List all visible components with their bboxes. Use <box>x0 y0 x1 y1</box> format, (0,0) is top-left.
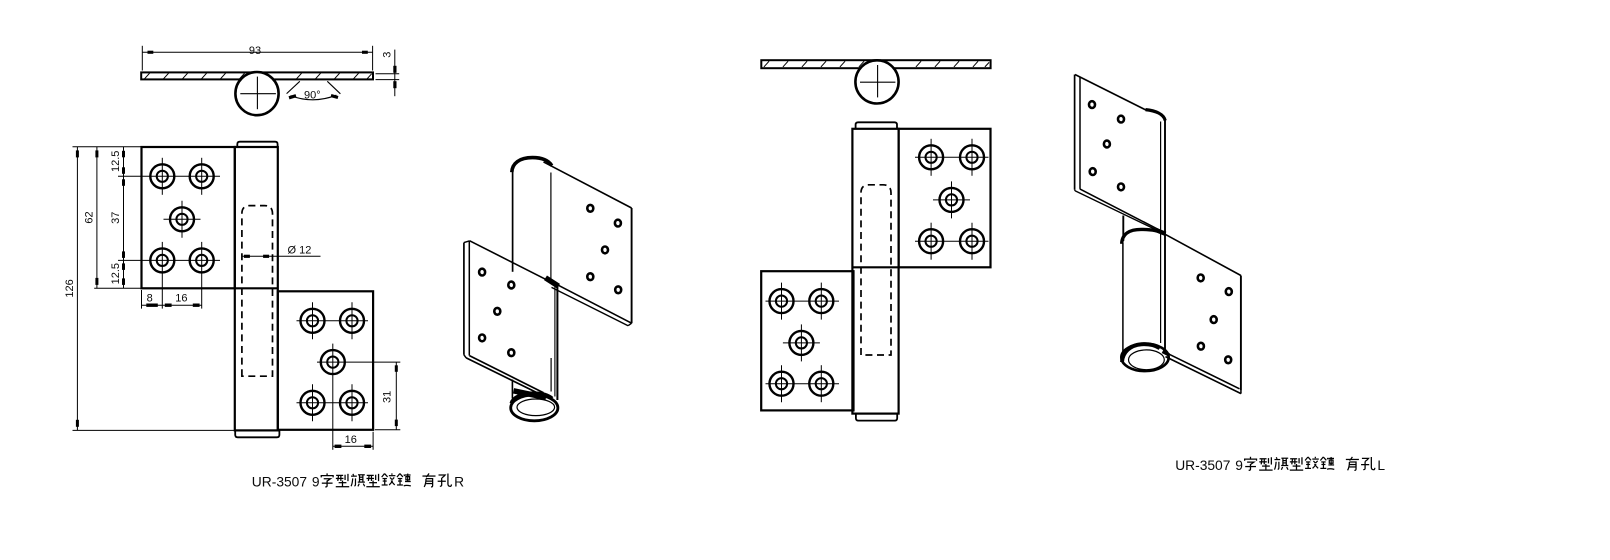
svg-text:UR-3507: UR-3507 <box>252 475 307 490</box>
svg-text:90°: 90° <box>304 89 321 101</box>
svg-text:9: 9 <box>1235 458 1243 473</box>
svg-text:8: 8 <box>147 292 153 304</box>
svg-text:12.5: 12.5 <box>110 263 122 284</box>
svg-text:12.5: 12.5 <box>110 151 122 172</box>
svg-text:R: R <box>454 475 464 490</box>
svg-text:3: 3 <box>381 52 393 58</box>
svg-text:9: 9 <box>312 475 320 490</box>
svg-text:31: 31 <box>382 391 394 403</box>
svg-text:37: 37 <box>110 212 122 224</box>
svg-text:UR-3507: UR-3507 <box>1175 458 1230 473</box>
svg-text:16: 16 <box>345 434 357 446</box>
svg-text:16: 16 <box>175 292 187 304</box>
svg-text:126: 126 <box>64 279 76 297</box>
svg-text:L: L <box>1377 458 1385 473</box>
svg-text:Ø 12: Ø 12 <box>288 245 312 257</box>
svg-text:62: 62 <box>84 211 96 223</box>
svg-text:93: 93 <box>249 45 261 57</box>
